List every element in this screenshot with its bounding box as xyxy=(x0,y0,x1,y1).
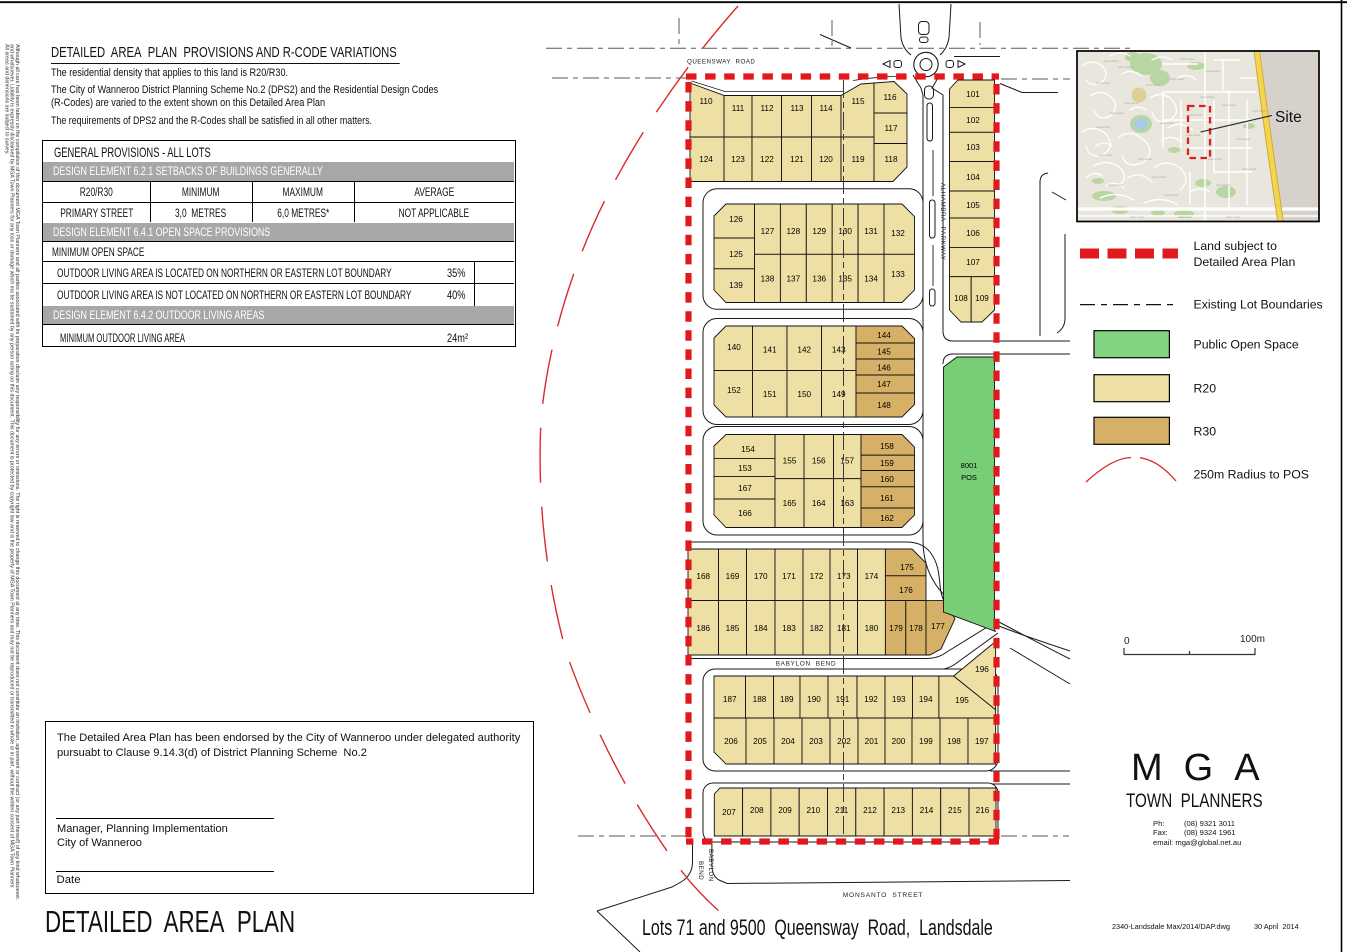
svg-text:139: 139 xyxy=(729,281,743,290)
svg-text:xxxx xxxxx: xxxx xxxxx xyxy=(1160,121,1175,125)
svg-text:165: 165 xyxy=(783,499,797,508)
svg-text:168: 168 xyxy=(696,572,710,581)
svg-text:195: 195 xyxy=(955,696,969,705)
svg-text:xxxx xxxxx: xxxx xxxxx xyxy=(1186,133,1201,137)
svg-text:214: 214 xyxy=(920,806,934,815)
svg-text:212: 212 xyxy=(863,806,877,815)
svg-text:208: 208 xyxy=(750,806,764,815)
svg-text:198: 198 xyxy=(947,737,961,746)
svg-text:xxxx xxxxx: xxxx xxxxx xyxy=(1170,77,1185,81)
svg-text:xxxx xxxxx: xxxx xxxxx xyxy=(1222,103,1237,107)
svg-text:164: 164 xyxy=(812,499,826,508)
svg-text:107: 107 xyxy=(966,258,980,267)
svg-text:171: 171 xyxy=(782,572,796,581)
svg-text:xxxx xxxxx: xxxx xxxxx xyxy=(1124,101,1139,105)
svg-text:106: 106 xyxy=(966,229,980,238)
svg-text:xxxx xxxxx: xxxx xxxxx xyxy=(1236,137,1251,141)
svg-text:xxxx xxxxx: xxxx xxxxx xyxy=(1216,183,1231,187)
svg-text:xxxx xxxxx: xxxx xxxxx xyxy=(1188,113,1203,117)
svg-text:xxxx xxxxx: xxxx xxxxx xyxy=(1206,69,1221,73)
svg-text:xxxx xxxxx: xxxx xxxxx xyxy=(1200,95,1215,99)
svg-text:132: 132 xyxy=(891,229,905,238)
svg-text:201: 201 xyxy=(865,737,879,746)
svg-text:175: 175 xyxy=(900,563,914,572)
svg-text:199: 199 xyxy=(919,737,933,746)
svg-text:xxxx xxxxx: xxxx xxxxx xyxy=(1208,157,1223,161)
svg-text:159: 159 xyxy=(880,459,894,468)
svg-text:8001: 8001 xyxy=(961,461,978,470)
svg-text:111: 111 xyxy=(732,104,745,113)
svg-text:147: 147 xyxy=(877,380,891,389)
svg-text:153: 153 xyxy=(738,464,752,473)
svg-text:158: 158 xyxy=(880,442,894,451)
svg-text:R20: R20 xyxy=(1194,382,1217,396)
svg-text:xxxx xxxxx: xxxx xxxxx xyxy=(1108,183,1123,187)
svg-text:135: 135 xyxy=(838,274,852,283)
svg-text:163: 163 xyxy=(840,499,854,508)
svg-text:206: 206 xyxy=(724,737,738,746)
svg-text:144: 144 xyxy=(877,331,891,340)
svg-text:113: 113 xyxy=(790,104,803,113)
svg-text:Land subject to: Land subject to xyxy=(1194,239,1278,253)
svg-text:124: 124 xyxy=(699,155,713,164)
svg-text:172: 172 xyxy=(810,572,824,581)
svg-text:207: 207 xyxy=(722,808,736,817)
svg-text:BABYLON BEND: BABYLON BEND xyxy=(776,661,837,668)
svg-text:123: 123 xyxy=(731,155,745,164)
svg-text:186: 186 xyxy=(696,624,710,633)
svg-text:204: 204 xyxy=(781,737,795,746)
svg-text:157: 157 xyxy=(840,457,854,466)
svg-text:130: 130 xyxy=(838,227,852,236)
svg-text:141: 141 xyxy=(763,345,777,354)
svg-text:184: 184 xyxy=(754,624,768,633)
svg-text:250m Radius to POS: 250m Radius to POS xyxy=(1194,468,1310,482)
svg-text:188: 188 xyxy=(753,695,767,704)
svg-text:xxxx xxxxx: xxxx xxxxx xyxy=(1104,59,1119,63)
svg-text:138: 138 xyxy=(761,274,775,283)
svg-text:122: 122 xyxy=(760,155,774,164)
svg-text:205: 205 xyxy=(753,737,767,746)
svg-text:MONSANTO STREET: MONSANTO STREET xyxy=(843,892,923,899)
svg-text:161: 161 xyxy=(880,494,894,503)
svg-text:POS: POS xyxy=(961,473,977,482)
svg-text:xxxx xxxxx: xxxx xxxxx xyxy=(1098,153,1113,157)
svg-text:ALHAMBRA PARKWAY: ALHAMBRA PARKWAY xyxy=(939,183,946,260)
svg-text:211: 211 xyxy=(835,806,848,815)
svg-text:xxxx xxxxx: xxxx xxxxx xyxy=(1242,167,1257,171)
svg-text:142: 142 xyxy=(797,345,811,354)
svg-text:180: 180 xyxy=(865,624,879,633)
svg-text:QUEENSWAY ROAD: QUEENSWAY ROAD xyxy=(687,59,755,66)
svg-text:202: 202 xyxy=(837,737,851,746)
svg-text:BABYLON: BABYLON xyxy=(707,849,714,882)
svg-text:203: 203 xyxy=(809,737,823,746)
svg-text:193: 193 xyxy=(892,695,906,704)
svg-text:196: 196 xyxy=(975,665,989,674)
svg-text:148: 148 xyxy=(877,401,891,410)
svg-text:145: 145 xyxy=(877,348,891,357)
svg-text:BEND: BEND xyxy=(697,861,704,880)
svg-text:xxxx xxxxx: xxxx xxxxx xyxy=(1110,111,1125,115)
svg-text:133: 133 xyxy=(891,270,905,279)
svg-text:121: 121 xyxy=(790,155,804,164)
svg-text:xxxx xxxxx: xxxx xxxxx xyxy=(1146,83,1161,87)
svg-text:166: 166 xyxy=(738,509,752,518)
svg-text:127: 127 xyxy=(761,227,775,236)
svg-text:104: 104 xyxy=(966,173,980,182)
svg-text:197: 197 xyxy=(975,737,989,746)
svg-text:Existing Lot Boundaries: Existing Lot Boundaries xyxy=(1194,298,1323,312)
svg-text:117: 117 xyxy=(884,124,897,133)
svg-text:170: 170 xyxy=(754,572,768,581)
svg-text:182: 182 xyxy=(810,624,824,633)
svg-text:213: 213 xyxy=(891,806,905,815)
svg-text:126: 126 xyxy=(729,215,743,224)
svg-text:114: 114 xyxy=(819,104,832,113)
svg-text:192: 192 xyxy=(864,695,878,704)
svg-text:105: 105 xyxy=(966,201,980,210)
svg-text:Site: Site xyxy=(1275,109,1302,126)
svg-text:191: 191 xyxy=(836,695,850,704)
svg-text:112: 112 xyxy=(760,104,773,113)
svg-text:Detailed Area Plan: Detailed Area Plan xyxy=(1194,255,1296,269)
svg-text:xxxx xxxxx: xxxx xxxxx xyxy=(1118,65,1133,69)
svg-text:169: 169 xyxy=(726,572,740,581)
svg-text:183: 183 xyxy=(782,624,796,633)
svg-text:129: 129 xyxy=(812,227,826,236)
svg-text:xxxx xxxxx: xxxx xxxxx xyxy=(1252,109,1267,113)
svg-text:128: 128 xyxy=(787,227,801,236)
svg-text:136: 136 xyxy=(812,274,826,283)
svg-text:167: 167 xyxy=(738,484,752,493)
svg-text:xxxx xxxxx: xxxx xxxxx xyxy=(1178,215,1193,219)
svg-text:150: 150 xyxy=(797,390,811,399)
svg-text:174: 174 xyxy=(865,572,879,581)
svg-text:and whatsoever. Liability is: and whatsoever. Liability is expressly d… xyxy=(9,44,15,888)
svg-text:116: 116 xyxy=(883,93,896,102)
svg-text:160: 160 xyxy=(880,475,894,484)
svg-text:131: 131 xyxy=(864,227,878,236)
svg-text:118: 118 xyxy=(884,155,897,164)
svg-text:xxxx xxxxx: xxxx xxxxx xyxy=(1096,81,1111,85)
svg-text:176: 176 xyxy=(899,586,913,595)
svg-text:125: 125 xyxy=(729,250,743,259)
svg-text:103: 103 xyxy=(966,143,980,152)
svg-text:210: 210 xyxy=(807,806,821,815)
svg-text:156: 156 xyxy=(812,457,826,466)
svg-text:178: 178 xyxy=(909,624,923,633)
svg-text:108: 108 xyxy=(954,294,968,303)
svg-text:154: 154 xyxy=(741,445,755,454)
svg-text:190: 190 xyxy=(807,695,821,704)
svg-text:xxxx xxxxx: xxxx xxxxx xyxy=(1096,125,1111,129)
svg-text:209: 209 xyxy=(778,806,792,815)
svg-text:102: 102 xyxy=(966,116,980,125)
svg-text:All areas and dimensions are s: All areas and dimensions are subject to … xyxy=(4,44,10,155)
svg-text:101: 101 xyxy=(966,90,980,99)
svg-text:109: 109 xyxy=(975,294,989,303)
svg-text:120: 120 xyxy=(819,155,833,164)
svg-text:155: 155 xyxy=(783,457,797,466)
svg-text:Public Open Space: Public Open Space xyxy=(1194,338,1299,352)
svg-text:162: 162 xyxy=(880,514,894,523)
svg-text:177: 177 xyxy=(931,622,945,631)
svg-text:146: 146 xyxy=(877,364,891,373)
svg-text:xxxx xxxxx: xxxx xxxxx xyxy=(1226,215,1241,219)
svg-text:xxxx xxxxx: xxxx xxxxx xyxy=(1164,193,1179,197)
svg-text:185: 185 xyxy=(726,624,740,633)
svg-text:xxxx xxxxx: xxxx xxxxx xyxy=(1130,215,1145,219)
svg-text:137: 137 xyxy=(787,274,801,283)
svg-text:100m: 100m xyxy=(1240,634,1265,645)
svg-text:R30: R30 xyxy=(1194,425,1217,439)
svg-text:140: 140 xyxy=(727,343,741,352)
svg-text:151: 151 xyxy=(763,390,777,399)
svg-text:xxxx xxxxx: xxxx xxxxx xyxy=(1152,175,1167,179)
svg-text:216: 216 xyxy=(976,806,990,815)
svg-text:xxxx xxxxx: xxxx xxxxx xyxy=(1138,157,1153,161)
svg-text:194: 194 xyxy=(919,695,933,704)
svg-text:215: 215 xyxy=(948,806,962,815)
svg-text:179: 179 xyxy=(889,624,903,633)
svg-text:200: 200 xyxy=(892,737,906,746)
svg-text:119: 119 xyxy=(851,155,864,164)
svg-text:0: 0 xyxy=(1124,636,1130,647)
svg-text:110: 110 xyxy=(699,97,712,106)
svg-text:187: 187 xyxy=(723,695,737,704)
svg-text:152: 152 xyxy=(727,386,741,395)
svg-text:189: 189 xyxy=(780,695,794,704)
svg-text:134: 134 xyxy=(864,274,878,283)
svg-text:115: 115 xyxy=(851,97,864,106)
svg-text:xxxx xxxxx: xxxx xxxxx xyxy=(1180,57,1195,61)
